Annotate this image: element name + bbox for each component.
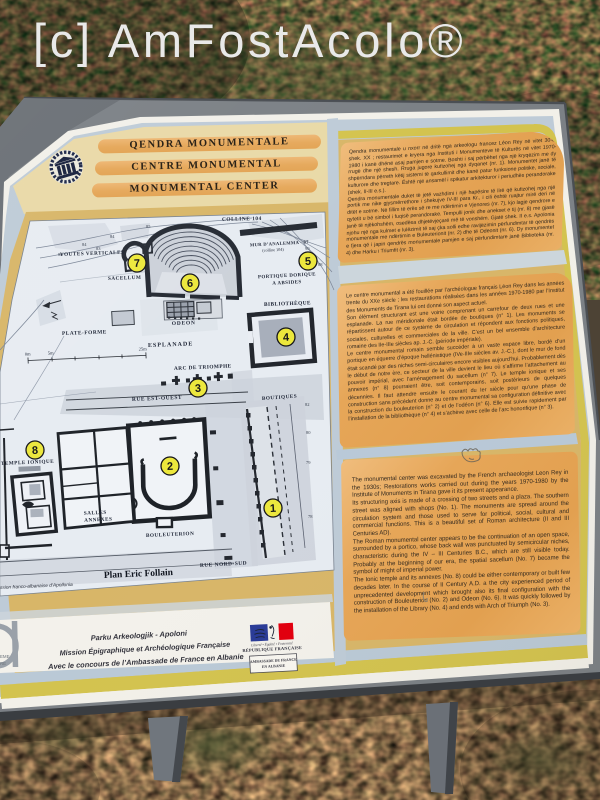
svg-text:RE: RE: [0, 661, 6, 666]
svg-text:Parku Arkeologjik - Apoloni: Parku Arkeologjik - Apoloni: [91, 628, 189, 642]
svg-text:EME: EME: [0, 654, 10, 659]
